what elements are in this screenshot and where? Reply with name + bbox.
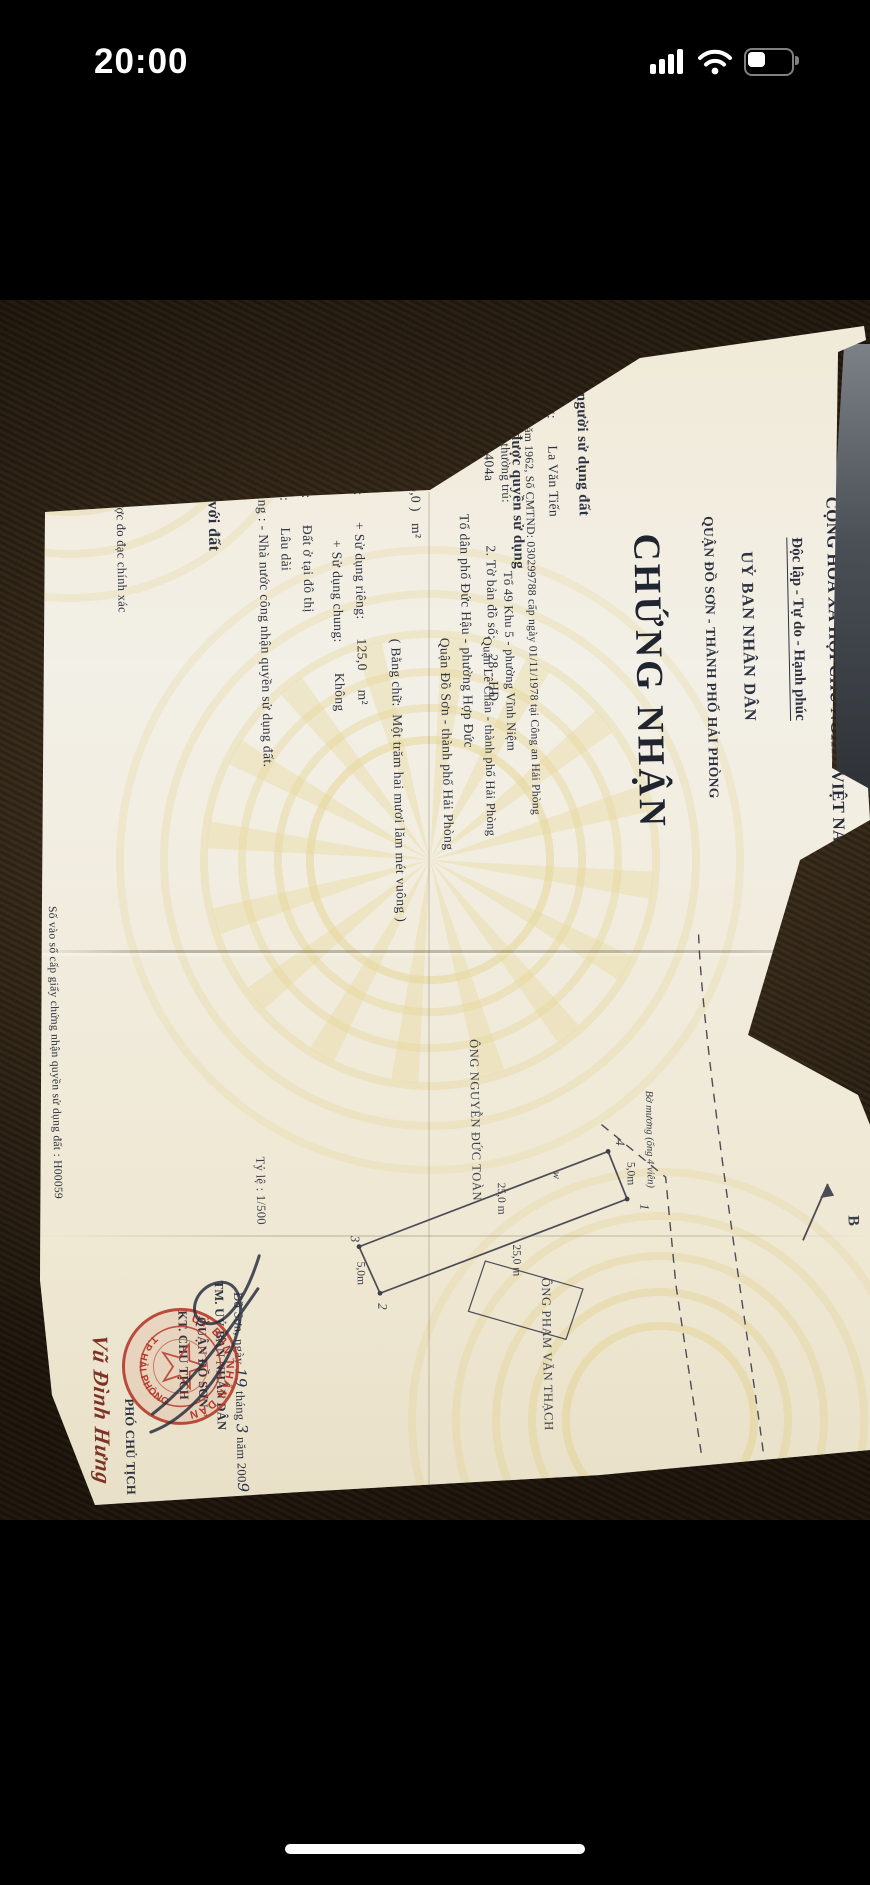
home-indicator[interactable] xyxy=(285,1844,585,1854)
signal-bars-icon xyxy=(650,49,686,75)
certificate-paper: CỘNG HÒA XÃ HỘI CHỦ NGHĨA VIỆT NAM Độc l… xyxy=(0,300,870,1520)
status-bar: 20:00 xyxy=(0,36,870,100)
battery-level xyxy=(748,52,765,67)
battery-icon xyxy=(744,48,794,76)
status-icons xyxy=(650,48,794,76)
clock: 20:00 xyxy=(94,42,189,82)
photo-of-land-certificate[interactable]: CỘNG HÒA XÃ HỘI CHỦ NGHĨA VIỆT NAM Độc l… xyxy=(0,300,870,1520)
grey-object-on-floor xyxy=(833,344,870,794)
phone-screen: 20:00 xyxy=(0,0,870,1885)
ink-signature xyxy=(0,300,870,1520)
document-content: CỘNG HÒA XÃ HỘI CHỦ NGHĨA VIỆT NAM Độc l… xyxy=(0,300,870,1520)
wifi-icon xyxy=(698,49,732,75)
section5-heading: V- Sơ đồ thửa đất xyxy=(842,857,861,973)
section4-heading: IV- Ghi chú xyxy=(135,364,154,444)
